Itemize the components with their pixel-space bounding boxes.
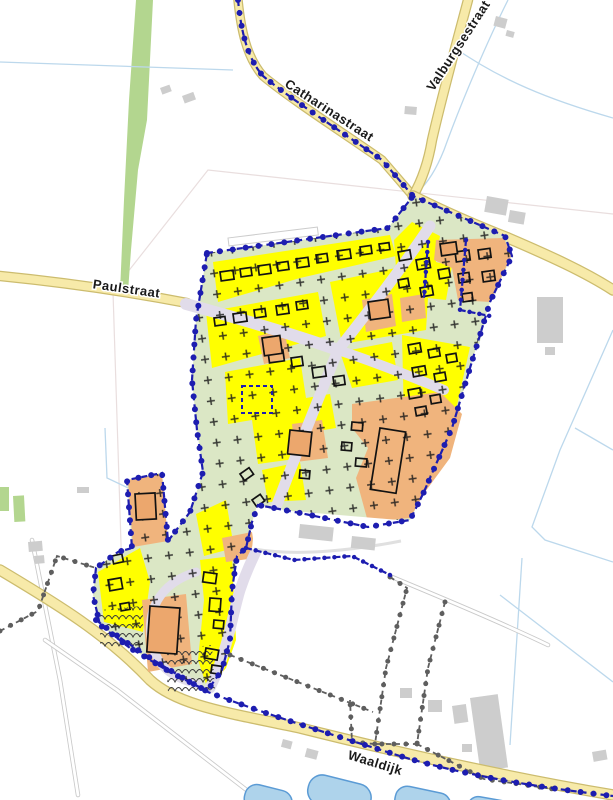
- plan-area-layer[interactable]: [85, 190, 525, 710]
- road-label-catharinastraat: Catharinastraat: [282, 76, 377, 145]
- green-patch: [0, 487, 9, 511]
- green-verge-strip: [120, 0, 153, 292]
- road-waaldijk: [0, 570, 613, 795]
- map-viewport[interactable]: Catharinastraat Valburgsestraat Paulstra…: [0, 0, 613, 800]
- parcel-outline: [113, 292, 122, 575]
- road-label-valburgsestraat: Valburgsestraat: [423, 0, 493, 94]
- adjacent-plan-boundary: [0, 556, 560, 790]
- green-patch: [13, 495, 25, 522]
